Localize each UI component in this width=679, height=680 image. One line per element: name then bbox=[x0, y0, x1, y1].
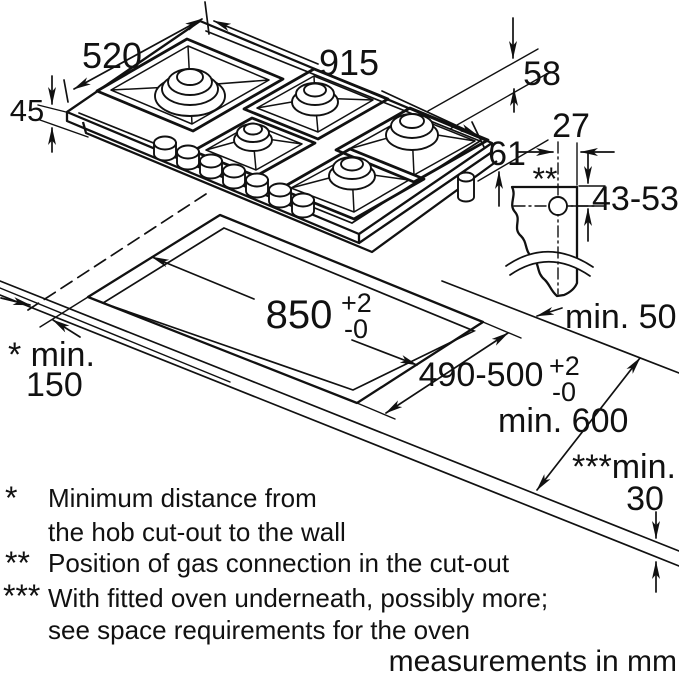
burner-cap-top bbox=[304, 84, 326, 97]
dimension-min-30: ***min. 30 bbox=[572, 448, 676, 592]
footnote-1-line-1: Minimum distance from bbox=[48, 483, 317, 513]
dimension-min-50: min. 50 bbox=[537, 298, 677, 336]
footnote-3-line-2: see space requirements for the oven bbox=[48, 615, 470, 645]
dim-label-min-oven-value: 30 bbox=[626, 480, 664, 518]
extension-line bbox=[483, 322, 521, 338]
installation-diagram: 915 520 45 58 61 27 ** 43-53 bbox=[0, 0, 679, 680]
units-caption: measurements in mm bbox=[389, 645, 677, 678]
gas-inlet-pipe bbox=[458, 173, 474, 202]
control-knob bbox=[246, 174, 268, 198]
dim-label-height-total: 61 bbox=[488, 135, 526, 173]
gas-marker: ** bbox=[533, 161, 558, 197]
dim-label-height-grate: 58 bbox=[523, 55, 561, 93]
dim-label-min-rear: min. 50 bbox=[565, 298, 677, 336]
dimension-43-53: 43-53 bbox=[568, 153, 679, 241]
worktop-hidden-back-edge bbox=[28, 194, 206, 310]
control-knob bbox=[177, 146, 199, 170]
burner-small bbox=[234, 124, 272, 152]
footnote-3-line-1: With fitted oven underneath, possibly mo… bbox=[48, 583, 548, 613]
footnote-marker-2: ** bbox=[5, 545, 30, 581]
control-knob bbox=[223, 165, 245, 189]
control-knob bbox=[154, 137, 176, 161]
dim-label-install-depth: 45 bbox=[10, 93, 44, 128]
dimension-850: 850 +2 -0 bbox=[152, 257, 417, 365]
footnote-marker-3: *** bbox=[3, 578, 40, 614]
control-knob bbox=[200, 155, 222, 179]
burner-right bbox=[386, 114, 438, 150]
dim-label-gas-offset: 27 bbox=[552, 107, 590, 145]
extension-line bbox=[428, 49, 538, 111]
dim-label-min-worktop: min. 600 bbox=[498, 402, 628, 440]
gas-connection-point bbox=[549, 197, 567, 215]
tick bbox=[64, 80, 68, 102]
burner-cap-top bbox=[400, 114, 424, 128]
footnote-1-line-2: the hob cut-out to the wall bbox=[48, 517, 346, 547]
dim-label-min-wall-value: 150 bbox=[26, 366, 83, 404]
dim-label-hob-width: 915 bbox=[319, 42, 379, 83]
extension-line bbox=[40, 120, 88, 137]
control-knob bbox=[269, 184, 291, 208]
dim-label-cutout-depth: 490-500 bbox=[419, 356, 544, 394]
burner-back-middle bbox=[292, 83, 338, 116]
footnote-marker-1: * bbox=[5, 480, 17, 516]
tolerance-minus: -0 bbox=[344, 314, 368, 344]
burner-cap-top bbox=[341, 158, 363, 171]
dim-label-cutout-width: 850 bbox=[266, 293, 333, 337]
footnote-2-line-1: Position of gas connection in the cut-ou… bbox=[48, 548, 510, 578]
dim-label-gas-height: 43-53 bbox=[592, 180, 679, 218]
burner-cap-top bbox=[177, 69, 203, 85]
dim-label-hob-depth: 520 bbox=[82, 35, 142, 76]
diagram-svg: 915 520 45 58 61 27 ** 43-53 bbox=[0, 0, 679, 680]
extension-line bbox=[40, 297, 88, 327]
burner-front-middle bbox=[329, 157, 375, 190]
control-knob bbox=[292, 194, 314, 218]
burner-cap-top bbox=[244, 124, 262, 135]
